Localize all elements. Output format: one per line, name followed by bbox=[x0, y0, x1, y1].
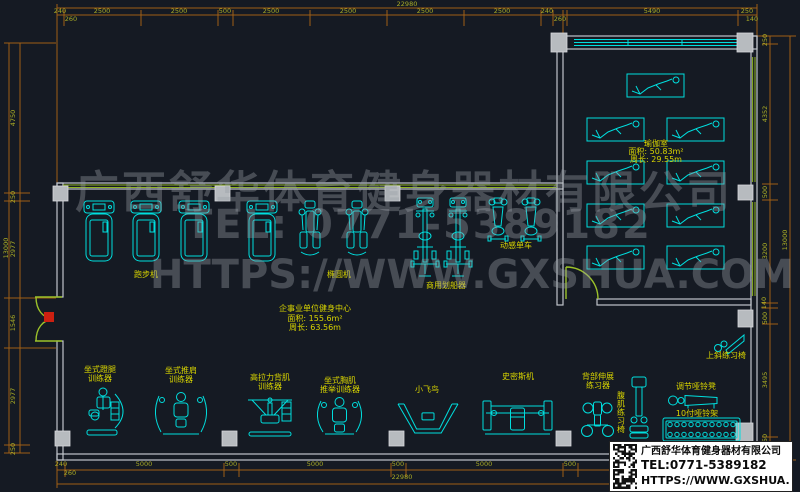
wall-hall-top bbox=[57, 183, 563, 189]
qr-code-icon bbox=[613, 444, 637, 468]
dimension-label: 2500 bbox=[94, 7, 111, 15]
dimension-label: 22980 bbox=[397, 0, 418, 8]
dimension-label: 250 bbox=[9, 443, 17, 455]
floor-plan-canvas: 跑步机椭圆机商用划船器动感单车坐式蹬腿训练器坐式推肩训练器高拉力背肌训练器坐式胸… bbox=[0, 0, 800, 492]
windows bbox=[63, 40, 755, 297]
shoulder-press-machine bbox=[155, 393, 206, 435]
equipment-label: 跑步机 bbox=[134, 269, 158, 279]
dimension-label: 5000 bbox=[136, 460, 153, 468]
yoga-mat bbox=[587, 204, 644, 227]
dimension-label: 250 bbox=[9, 191, 17, 203]
yoga-room-door bbox=[566, 267, 598, 299]
yoga-mat bbox=[667, 246, 724, 269]
window-hall-top bbox=[63, 185, 557, 188]
dimension-label: 2977 bbox=[9, 388, 17, 405]
pilaster bbox=[738, 310, 753, 327]
wall-yoga-left bbox=[557, 36, 563, 305]
dimension-label: 22980 bbox=[392, 473, 413, 481]
equipment-label: 调节哑铃凳 bbox=[676, 381, 716, 391]
equipment-label: 腹肌练习椅 bbox=[617, 390, 625, 434]
equipment-label: 10付哑铃架 bbox=[676, 408, 718, 418]
dimension-label: 500 bbox=[225, 460, 237, 468]
equipment-label: 训练器 bbox=[258, 381, 282, 391]
dimension-label: 500 bbox=[761, 186, 769, 198]
equipment-label: 坐式蹬腿 bbox=[84, 364, 116, 374]
dimension-label: 500 bbox=[219, 7, 231, 15]
equipment-label: 史密斯机 bbox=[502, 371, 534, 381]
fly-bird-machine bbox=[398, 404, 458, 433]
equipment-label: 动感单车 bbox=[500, 240, 532, 250]
dimension-label: 260 bbox=[64, 469, 76, 477]
dimension-text-layer: 2298024026025002500500250025002500250024… bbox=[2, 0, 789, 481]
pilaster bbox=[736, 423, 753, 442]
yoga-room-perimeter: 周长: 29.55m bbox=[630, 154, 682, 164]
pilaster bbox=[385, 186, 400, 201]
dimension-label: 500 bbox=[392, 460, 404, 468]
dimension-label: 4352 bbox=[761, 106, 769, 123]
yoga-mat bbox=[587, 118, 644, 141]
back-extension-machine bbox=[582, 402, 614, 437]
window-yoga-top bbox=[574, 40, 737, 46]
equipment-label: 背部伸展 bbox=[582, 371, 614, 381]
equipment-label: 练习器 bbox=[586, 380, 610, 390]
leg-press-machine bbox=[87, 388, 123, 435]
door-marker bbox=[44, 312, 54, 322]
dimension-label: 140 bbox=[746, 15, 758, 23]
spinbike bbox=[521, 198, 541, 241]
yoga-mat bbox=[667, 118, 724, 141]
dimension-label: 500 bbox=[761, 312, 769, 324]
equipment-label: 小飞鸟 bbox=[415, 384, 439, 394]
dumbbell-rack bbox=[663, 418, 740, 441]
treadmill bbox=[131, 201, 161, 261]
elliptical bbox=[299, 201, 321, 255]
dimension-label: 2500 bbox=[494, 7, 511, 15]
pilaster bbox=[556, 431, 571, 446]
pilaster bbox=[389, 431, 404, 446]
equipment-label: 高拉力背肌 bbox=[250, 372, 290, 382]
chest-press-machine bbox=[317, 398, 361, 435]
ab-chair bbox=[630, 377, 648, 438]
smith-machine bbox=[483, 401, 552, 434]
dimension-label: 13000 bbox=[781, 230, 789, 251]
equipment-label: 商用划船器 bbox=[426, 280, 466, 290]
dimension-label: 260 bbox=[65, 15, 77, 23]
dimension-label: 5000 bbox=[307, 460, 324, 468]
equipment-label: 椭圆机 bbox=[327, 269, 351, 279]
dimension-label: 3495 bbox=[761, 372, 769, 389]
dimension-label: 5000 bbox=[476, 460, 493, 468]
dimension-label: 2500 bbox=[171, 7, 188, 15]
cad-floorplan-screenshot: 跑步机椭圆机商用划船器动感单车坐式蹬腿训练器坐式推肩训练器高拉力背肌训练器坐式胸… bbox=[0, 0, 800, 492]
dimension-label: 2500 bbox=[340, 7, 357, 15]
yoga-mat bbox=[667, 161, 724, 184]
lat-pulldown-machine bbox=[248, 398, 292, 436]
gym-room-area: 面积: 155.6m² bbox=[287, 313, 342, 323]
pilaster bbox=[551, 33, 567, 52]
equipment-label: 坐式胸肌 bbox=[324, 375, 356, 385]
dimension-label: 2500 bbox=[263, 7, 280, 15]
dimension-label: 5490 bbox=[644, 7, 661, 15]
treadmill bbox=[179, 201, 209, 261]
spinbike bbox=[488, 198, 508, 241]
dimension-label: 1546 bbox=[9, 315, 17, 332]
pilaster bbox=[53, 186, 68, 201]
dimension-label: 4750 bbox=[9, 110, 17, 127]
treadmill bbox=[247, 201, 277, 261]
room-labels: 企事业单位健身中心 面积: 155.6m² 周长: 63.56m 瑜伽室 面积:… bbox=[279, 138, 684, 332]
dimension-label: 240 bbox=[55, 460, 67, 468]
dimension-label: 240 bbox=[541, 7, 553, 15]
equipment-labels-layer: 跑步机椭圆机商用划船器动感单车坐式蹬腿训练器坐式推肩训练器高拉力背肌训练器坐式胸… bbox=[84, 240, 746, 434]
equipment-layer bbox=[84, 198, 744, 441]
title-text-column: 广西舒华体育健身器材有限公司 TEL:0771-5389182 HTTPS://… bbox=[641, 445, 789, 488]
yoga-mat bbox=[587, 161, 644, 184]
pilasters bbox=[53, 33, 753, 446]
title-block: 广西舒华体育健身器材有限公司 TEL:0771-5389182 HTTPS://… bbox=[609, 441, 793, 492]
equipment-label: 训练器 bbox=[88, 373, 112, 383]
dimension-label: 140 bbox=[760, 297, 768, 309]
dimension-label: 2500 bbox=[417, 7, 434, 15]
treadmill bbox=[84, 201, 114, 261]
company-name: 广西舒华体育健身器材有限公司 bbox=[641, 445, 789, 458]
yoga-mat bbox=[667, 204, 724, 227]
pilaster bbox=[737, 33, 753, 52]
equipment-label: 上斜练习椅 bbox=[706, 350, 746, 360]
pilaster bbox=[222, 431, 237, 446]
equipment-label: 推举训练器 bbox=[320, 384, 360, 394]
equipment-label: 训练器 bbox=[169, 374, 193, 384]
pilaster bbox=[55, 431, 70, 446]
dimension-label: 2977 bbox=[9, 241, 17, 258]
pilaster bbox=[738, 185, 753, 200]
dumbbell-bench bbox=[669, 396, 718, 409]
dimension-label: 240 bbox=[54, 7, 66, 15]
yoga-mat bbox=[587, 246, 644, 269]
qr-code-icon bbox=[613, 469, 637, 489]
dimension-label: 250 bbox=[761, 34, 769, 46]
phone-number: TEL:0771-5389182 bbox=[641, 458, 789, 474]
pilaster bbox=[215, 186, 230, 201]
qr-column bbox=[613, 444, 637, 489]
elliptical bbox=[346, 201, 368, 255]
gym-room-perimeter: 周长: 63.56m bbox=[289, 322, 341, 332]
website-url: HTTPS://WWW.GXSHUA.COM bbox=[641, 474, 789, 488]
wall-yoga-bottom bbox=[597, 299, 751, 305]
dimension-label: 250 bbox=[741, 7, 753, 15]
yoga-mats-layer bbox=[587, 74, 724, 269]
equipment-label: 坐式推肩 bbox=[165, 365, 197, 375]
rower bbox=[411, 198, 439, 276]
walls bbox=[57, 36, 757, 460]
gym-room-name: 企事业单位健身中心 bbox=[279, 303, 351, 313]
dimension-label: 3200 bbox=[761, 243, 769, 260]
dimension-label: 500 bbox=[564, 460, 576, 468]
rower bbox=[444, 198, 472, 276]
dimension-label: 260 bbox=[554, 15, 566, 23]
yoga-mat bbox=[627, 74, 684, 97]
window-right-wall bbox=[753, 57, 755, 296]
wall-right bbox=[751, 36, 757, 460]
